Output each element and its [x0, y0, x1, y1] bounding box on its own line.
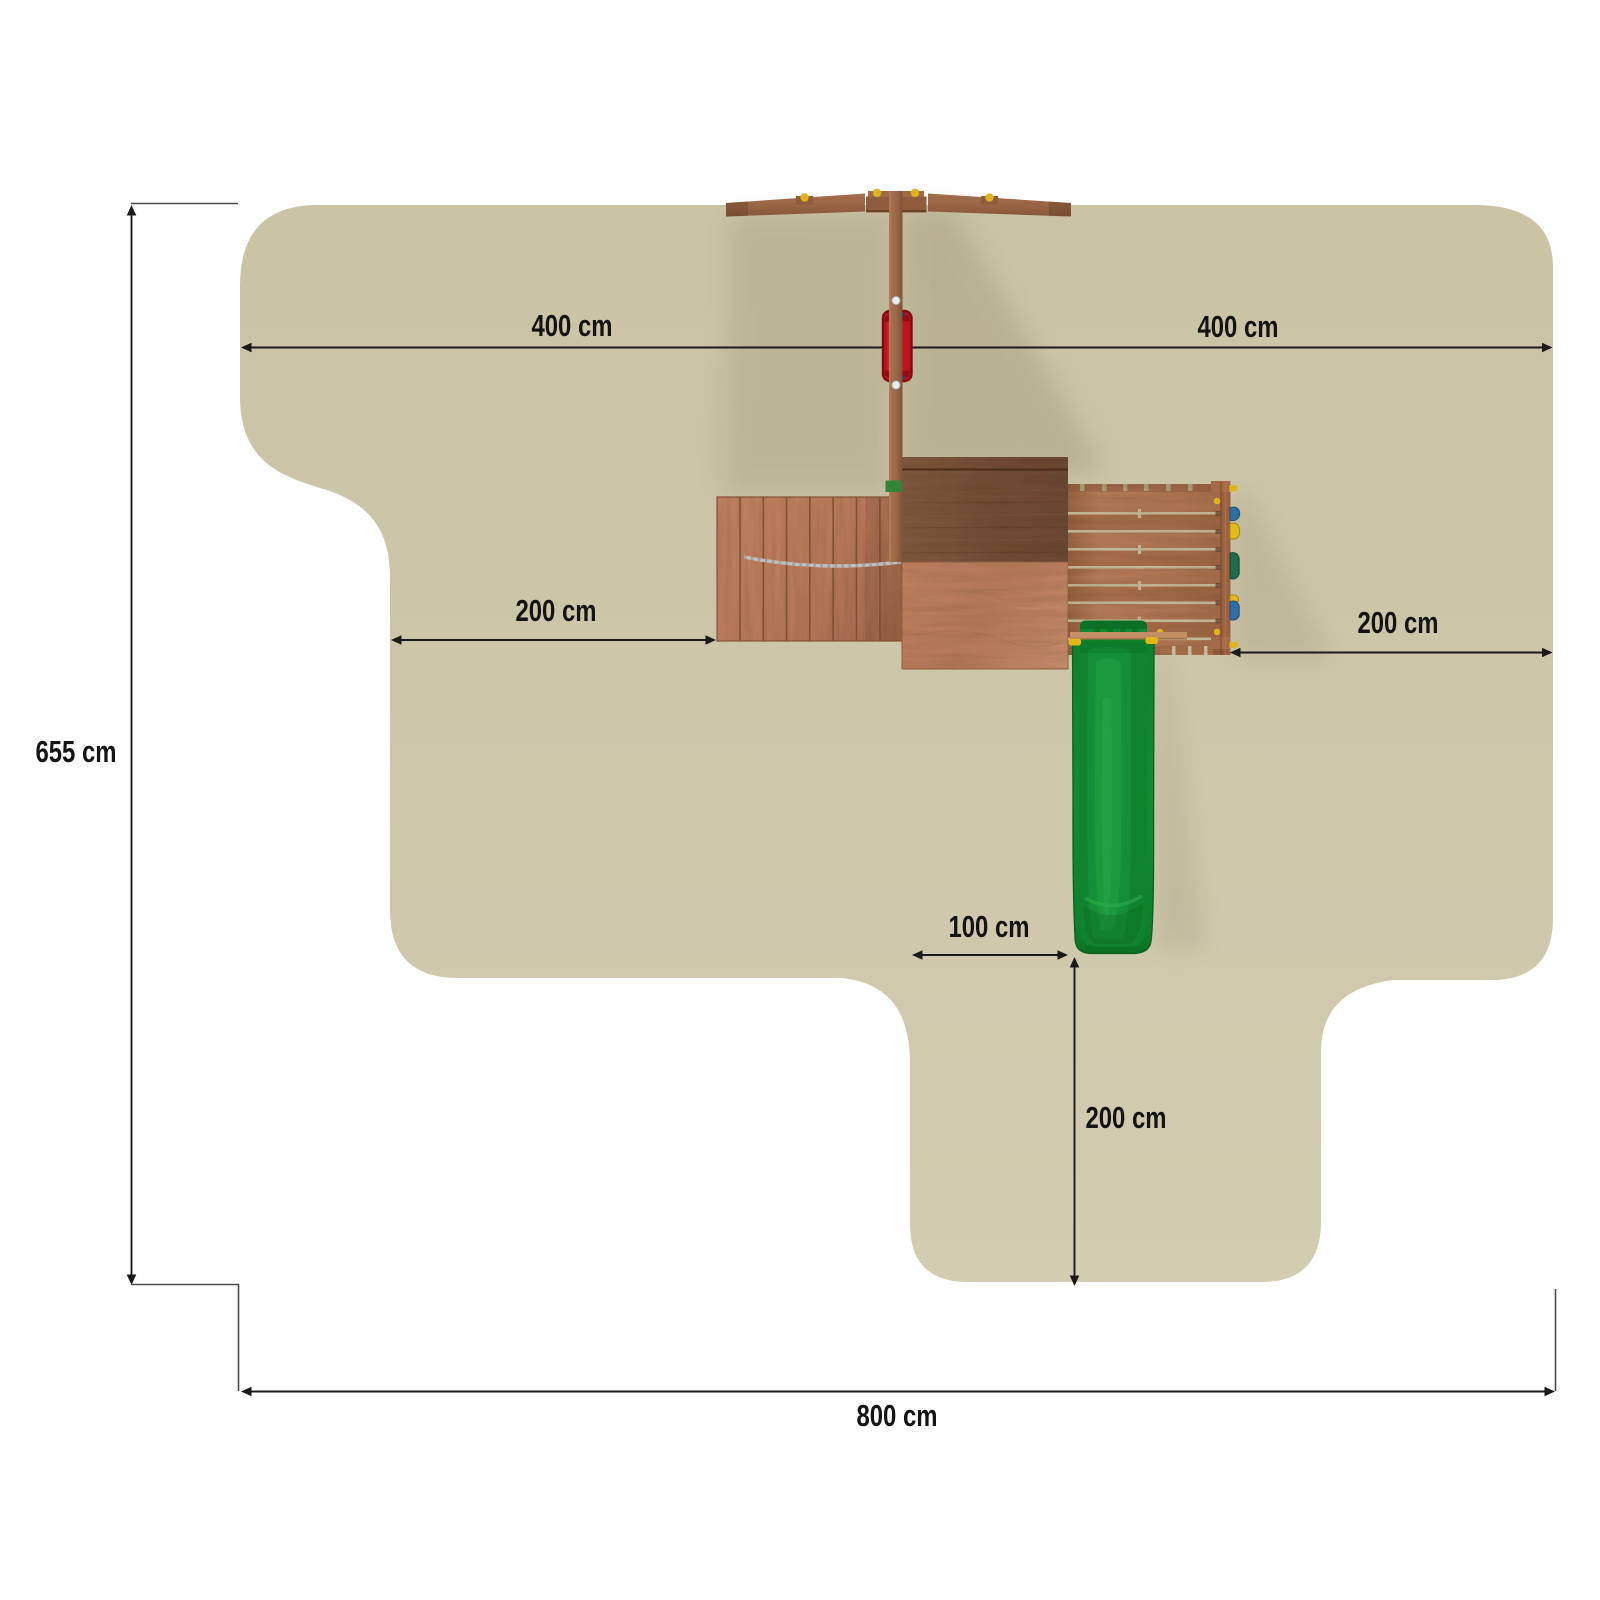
svg-text:100 cm: 100 cm — [949, 910, 1030, 944]
svg-text:400 cm: 400 cm — [532, 309, 613, 343]
svg-text:200 cm: 200 cm — [1358, 606, 1439, 640]
svg-text:800 cm: 800 cm — [857, 1399, 938, 1433]
svg-text:655 cm: 655 cm — [36, 735, 117, 769]
svg-text:400 cm: 400 cm — [1198, 310, 1279, 344]
svg-text:200 cm: 200 cm — [516, 594, 597, 628]
svg-text:200 cm: 200 cm — [1086, 1101, 1167, 1135]
